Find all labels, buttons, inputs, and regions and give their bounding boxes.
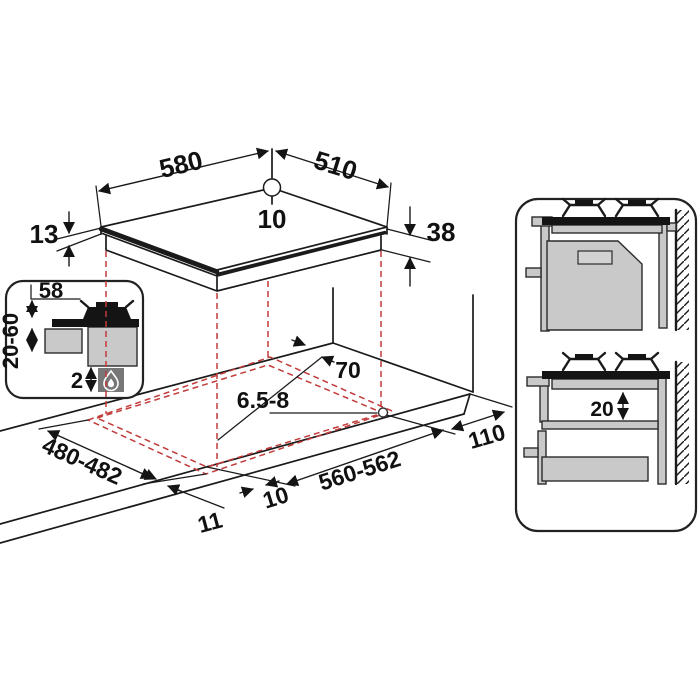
- clearance-below-label: 2: [71, 368, 83, 393]
- side-overlap-label: 11: [195, 507, 225, 538]
- front-overlap-label: 10: [260, 481, 292, 513]
- hole-offset-label: 10: [258, 204, 287, 234]
- lip-thickness-label: 13: [30, 219, 59, 249]
- fixing-hole-label: 6.5-8: [237, 387, 290, 413]
- hob-surface-section: [52, 319, 139, 327]
- worktop-thickness-label: 20-60: [0, 313, 23, 369]
- burner-body: [563, 359, 605, 370]
- dim-arrow-front-overlap: [240, 489, 253, 493]
- burner-detail-inset: 58 20-60 2: [0, 278, 143, 398]
- burner-body: [563, 205, 605, 216]
- wall-hatching: [676, 210, 689, 330]
- worktop-right-corner-edge: [464, 394, 470, 414]
- ext-line: [39, 420, 88, 429]
- burner-body: [616, 205, 658, 216]
- fixing-bracket: [526, 268, 541, 277]
- worktop-section: [45, 329, 82, 353]
- dim-arrow-side-overlap: [143, 473, 156, 479]
- side-view-oven: [526, 199, 689, 331]
- rear-clearance-label: 70: [335, 357, 361, 383]
- ext-line: [96, 186, 101, 226]
- hob-width-label: 580: [156, 145, 205, 184]
- right-clearance-label: 110: [465, 419, 508, 454]
- hob-installation-diagram: 480-482 11 10 560-562 110 70 6.5-8: [0, 0, 700, 700]
- wall-hatching: [676, 362, 689, 484]
- ext-line: [382, 250, 430, 262]
- burner-offset-label: 58: [39, 278, 63, 303]
- burner-body: [616, 359, 658, 370]
- burner-section: [83, 307, 131, 319]
- cabinet-side-right: [659, 221, 667, 328]
- cabinet-side-left: [540, 382, 548, 422]
- burner-cap: [628, 200, 646, 206]
- hob-surface: [542, 371, 670, 379]
- ext-line: [387, 183, 391, 226]
- hob-body-section: [88, 327, 137, 366]
- dim-arrow-rear-clearance: [322, 357, 334, 362]
- separator-shelf: [542, 421, 658, 429]
- body-depth-label: 38: [427, 217, 456, 247]
- dim-arrow-rear-clearance: [292, 340, 305, 345]
- side-view-panel: 20: [516, 199, 696, 531]
- burner-cap: [96, 302, 118, 307]
- hob-surface: [542, 217, 670, 225]
- cabinet-side-right: [658, 377, 666, 484]
- worktop-front-face-bottom: [0, 414, 464, 543]
- ext-line: [470, 394, 512, 407]
- fixing-bracket: [524, 448, 538, 457]
- ext-line: [387, 229, 430, 240]
- ext-line: [57, 234, 101, 251]
- rear-hole: [264, 179, 281, 196]
- burner-cap: [575, 354, 593, 360]
- hob-tray: [552, 225, 662, 233]
- hob-tray: [552, 379, 658, 389]
- drawer: [542, 457, 648, 481]
- leader-line: [170, 487, 224, 508]
- ext-line: [383, 414, 455, 434]
- ext-line: [57, 228, 101, 239]
- cutout-depth-label: 480-482: [38, 432, 126, 490]
- oven-vent: [578, 251, 612, 264]
- burner-cap: [628, 354, 646, 360]
- cutout-width-label: 560-562: [315, 445, 403, 495]
- hob-depth-label: 510: [310, 145, 360, 186]
- ext-line: [207, 467, 295, 486]
- fixing-hole: [379, 408, 388, 417]
- hob-top-surface: [101, 188, 387, 270]
- burner-cap: [575, 200, 593, 206]
- shelf-clearance-label: 20: [590, 398, 613, 421]
